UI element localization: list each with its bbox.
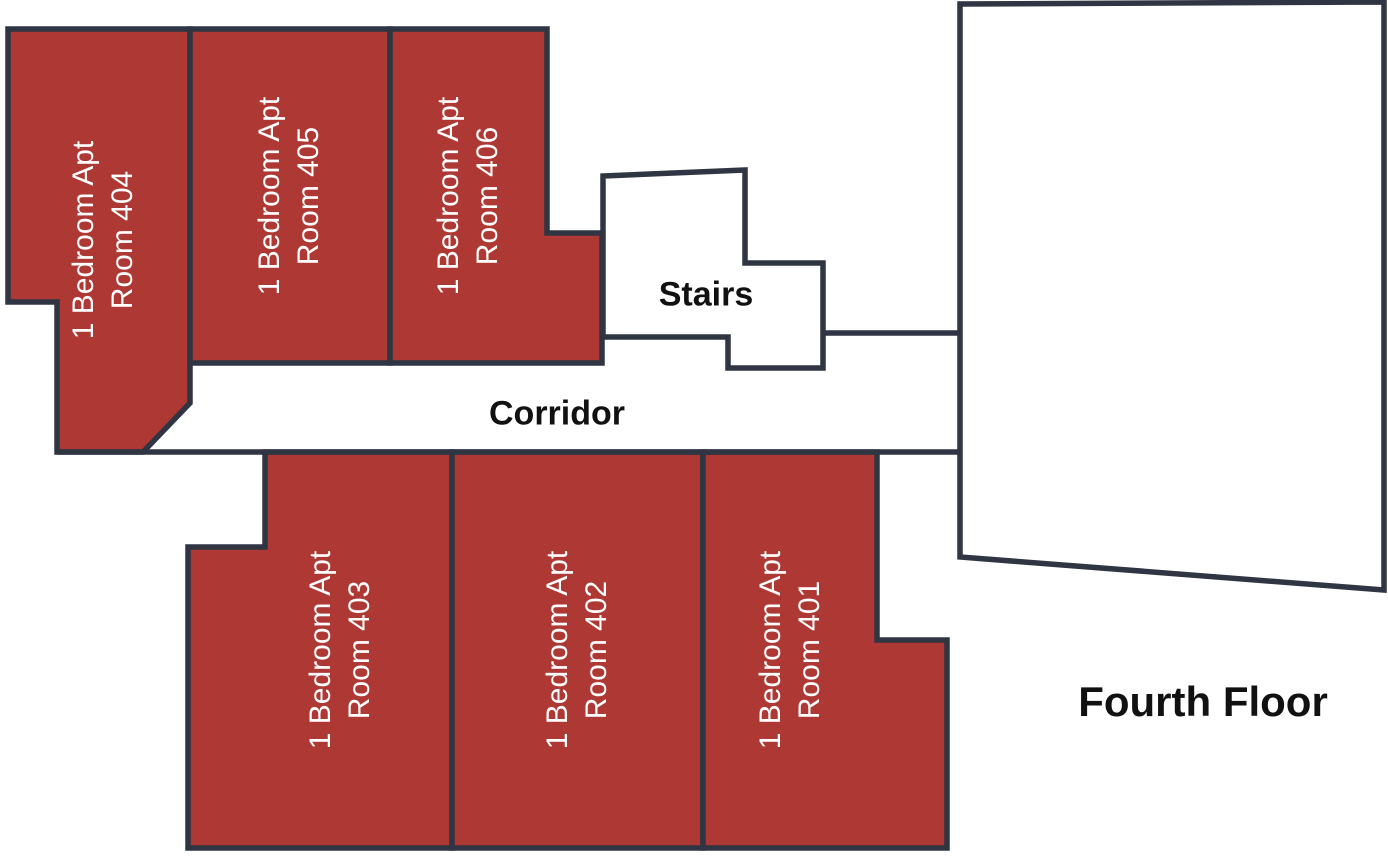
room-403-type: 1 Bedroom Apt [301,551,340,749]
room-403-number: Room 403 [340,551,379,749]
room-405-type: 1 Bedroom Apt [250,97,289,295]
room-402-label: 1 Bedroom Apt Room 402 [538,551,616,749]
room-404-type: 1 Bedroom Apt [64,141,103,339]
room-405-label: 1 Bedroom Apt Room 405 [250,97,328,295]
room-402-number: Room 402 [577,551,616,749]
floor-plan-canvas: 1 Bedroom Apt Room 404 1 Bedroom Apt Roo… [0,0,1388,856]
stairs-shape [603,170,823,368]
room-402-type: 1 Bedroom Apt [538,551,577,749]
room-401-type: 1 Bedroom Apt [751,551,790,749]
room-404-label: 1 Bedroom Apt Room 404 [64,141,142,339]
floor-plan-svg [0,0,1388,856]
room-406-type: 1 Bedroom Apt [429,97,468,295]
room-406-number: Room 406 [468,97,507,295]
corridor-label: Corridor [489,395,625,434]
room-401-number: Room 401 [790,551,829,749]
room-405-number: Room 405 [289,97,328,295]
empty-unit-shape [960,2,1384,590]
room-404-number: Room 404 [103,141,142,339]
stairs-label: Stairs [659,276,754,315]
room-401-label: 1 Bedroom Apt Room 401 [751,551,829,749]
floor-title: Fourth Floor [1078,678,1328,726]
room-406-label: 1 Bedroom Apt Room 406 [429,97,507,295]
room-403-label: 1 Bedroom Apt Room 403 [301,551,379,749]
